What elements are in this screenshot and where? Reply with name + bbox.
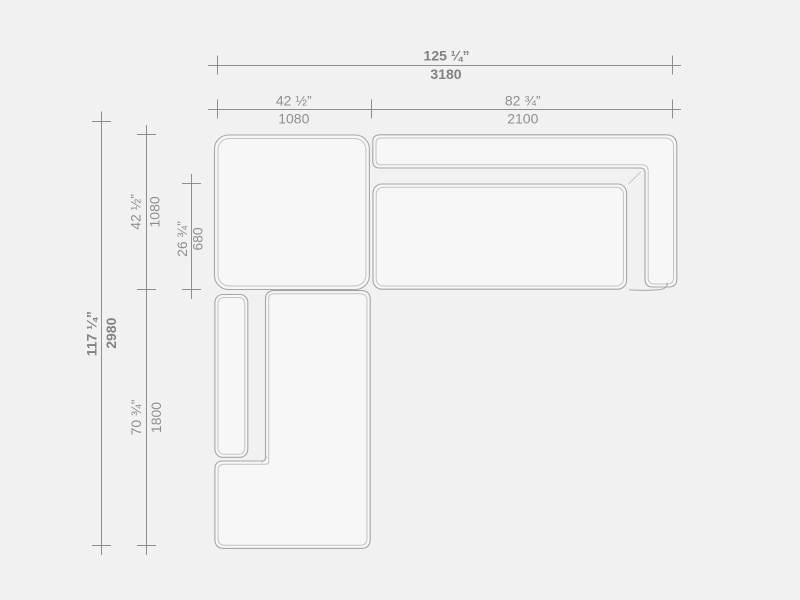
svg-text:82 ¾”: 82 ¾” xyxy=(505,93,541,109)
svg-text:26 ¾”: 26 ¾” xyxy=(174,221,190,257)
svg-text:2980: 2980 xyxy=(103,317,119,348)
svg-text:1800: 1800 xyxy=(148,402,164,433)
svg-text:70 ¾”: 70 ¾” xyxy=(128,399,144,435)
svg-text:3180: 3180 xyxy=(430,66,461,82)
svg-text:1080: 1080 xyxy=(147,196,163,227)
svg-text:1080: 1080 xyxy=(278,110,309,126)
svg-text:2100: 2100 xyxy=(507,110,538,126)
svg-text:117 ¼”: 117 ¼” xyxy=(83,311,99,356)
svg-text:125 ¼”: 125 ¼” xyxy=(424,47,470,63)
svg-text:680: 680 xyxy=(190,227,206,251)
svg-text:42 ½”: 42 ½” xyxy=(276,93,312,109)
svg-text:42 ½”: 42 ½” xyxy=(128,194,144,230)
